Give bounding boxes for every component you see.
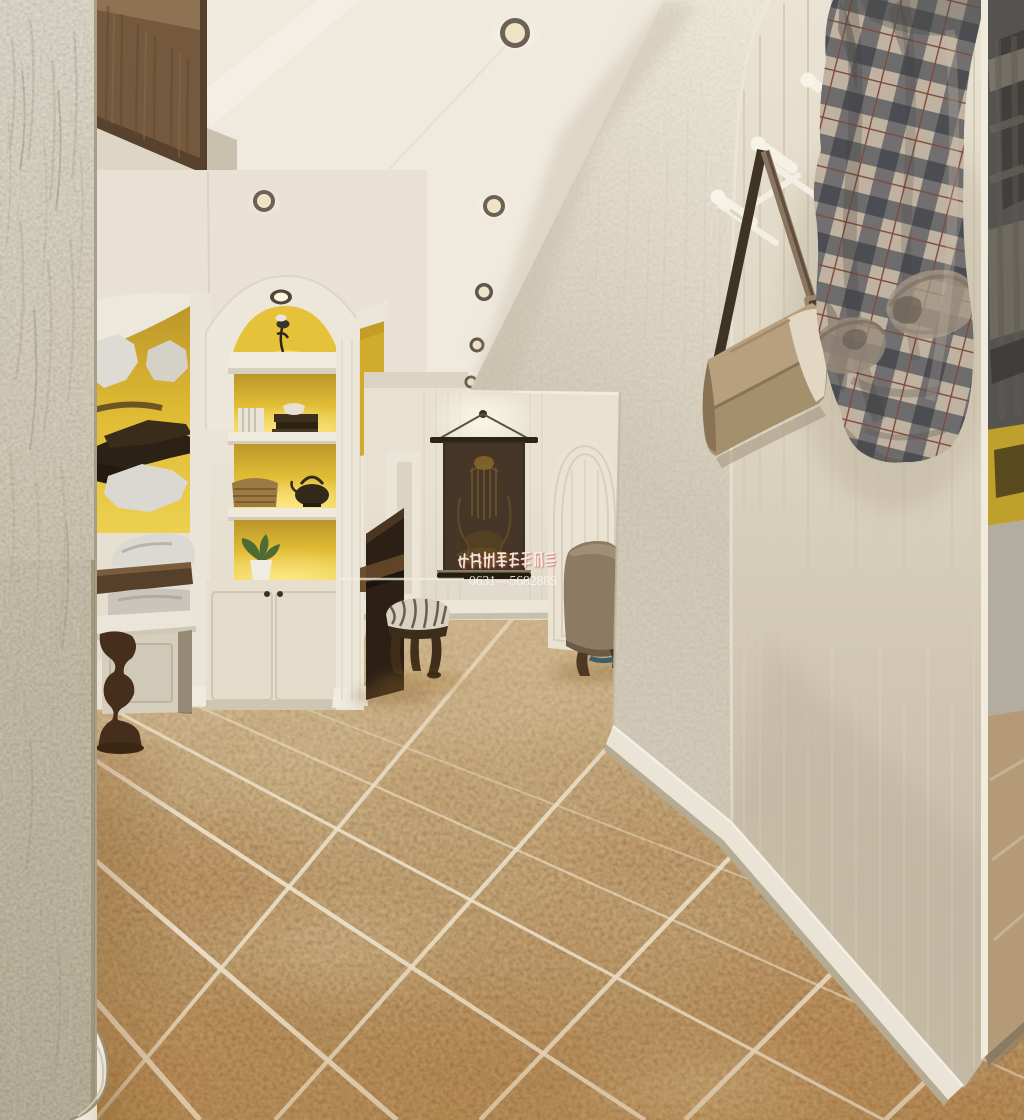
svg-text:0631—5682889: 0631—5682889 — [469, 573, 557, 588]
